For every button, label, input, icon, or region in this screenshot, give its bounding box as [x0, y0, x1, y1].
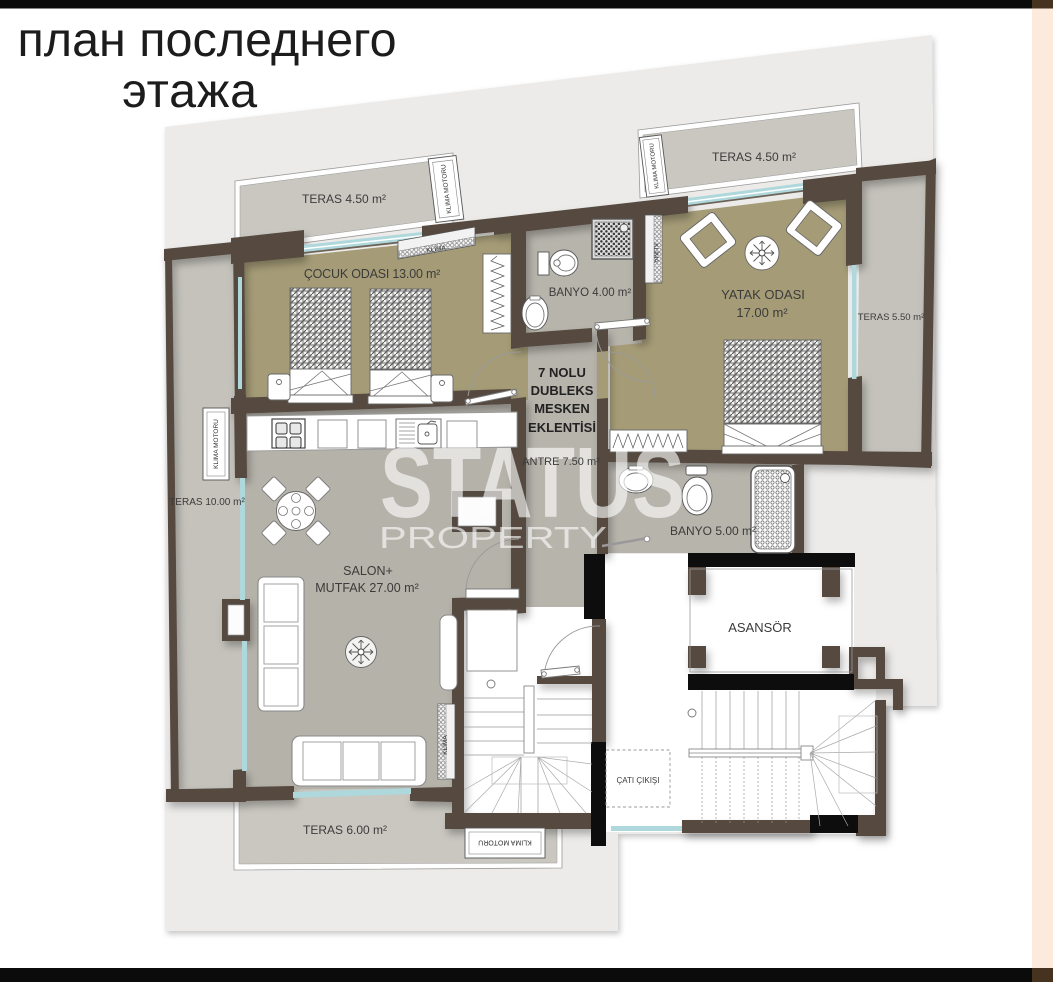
svg-text:TERAS 4.50 m²: TERAS 4.50 m² [302, 192, 386, 206]
svg-text:план последнего: план последнего [18, 13, 397, 67]
svg-text:DUBLEKS: DUBLEKS [531, 383, 594, 398]
svg-text:KLİMA: KLİMA [440, 735, 449, 755]
svg-text:MUTFAK 27.00 m²: MUTFAK 27.00 m² [315, 581, 419, 595]
svg-text:7 NOLU: 7 NOLU [538, 365, 586, 380]
svg-text:ASANSÖR: ASANSÖR [728, 620, 792, 635]
svg-text:YATAK ODASI: YATAK ODASI [721, 287, 805, 302]
svg-text:KLİMA: KLİMA [652, 243, 661, 263]
svg-text:KLIMA MOTORU: KLIMA MOTORU [478, 839, 532, 846]
svg-text:этажа: этажа [122, 64, 258, 118]
svg-text:ÇATI ÇIKIŞI: ÇATI ÇIKIŞI [617, 776, 660, 785]
svg-text:ANTRE 7.50 m²: ANTRE 7.50 m² [522, 456, 600, 468]
svg-text:TERAS 4.50 m²: TERAS 4.50 m² [712, 150, 796, 164]
svg-text:PROPERTY: PROPERTY [379, 520, 607, 555]
svg-text:EKLENTİSİ: EKLENTİSİ [528, 420, 596, 435]
svg-text:17.00 m²: 17.00 m² [736, 305, 788, 320]
svg-text:BANYO 4.00 m²: BANYO 4.00 m² [549, 287, 632, 299]
svg-text:SALON+: SALON+ [343, 564, 393, 578]
svg-text:TERAS 6.00 m²: TERAS 6.00 m² [303, 823, 387, 837]
svg-text:TERAS 10.00 m²: TERAS 10.00 m² [169, 497, 245, 508]
svg-text:MESKEN: MESKEN [534, 401, 590, 416]
svg-text:BANYO 5.00 m²: BANYO 5.00 m² [670, 524, 756, 538]
svg-text:ÇOCUK ODASI 13.00 m²: ÇOCUK ODASI 13.00 m² [304, 267, 440, 281]
svg-text:TERAS 5.50 m²: TERAS 5.50 m² [858, 312, 925, 323]
svg-text:KLIMA MOTORU: KLIMA MOTORU [213, 419, 220, 469]
